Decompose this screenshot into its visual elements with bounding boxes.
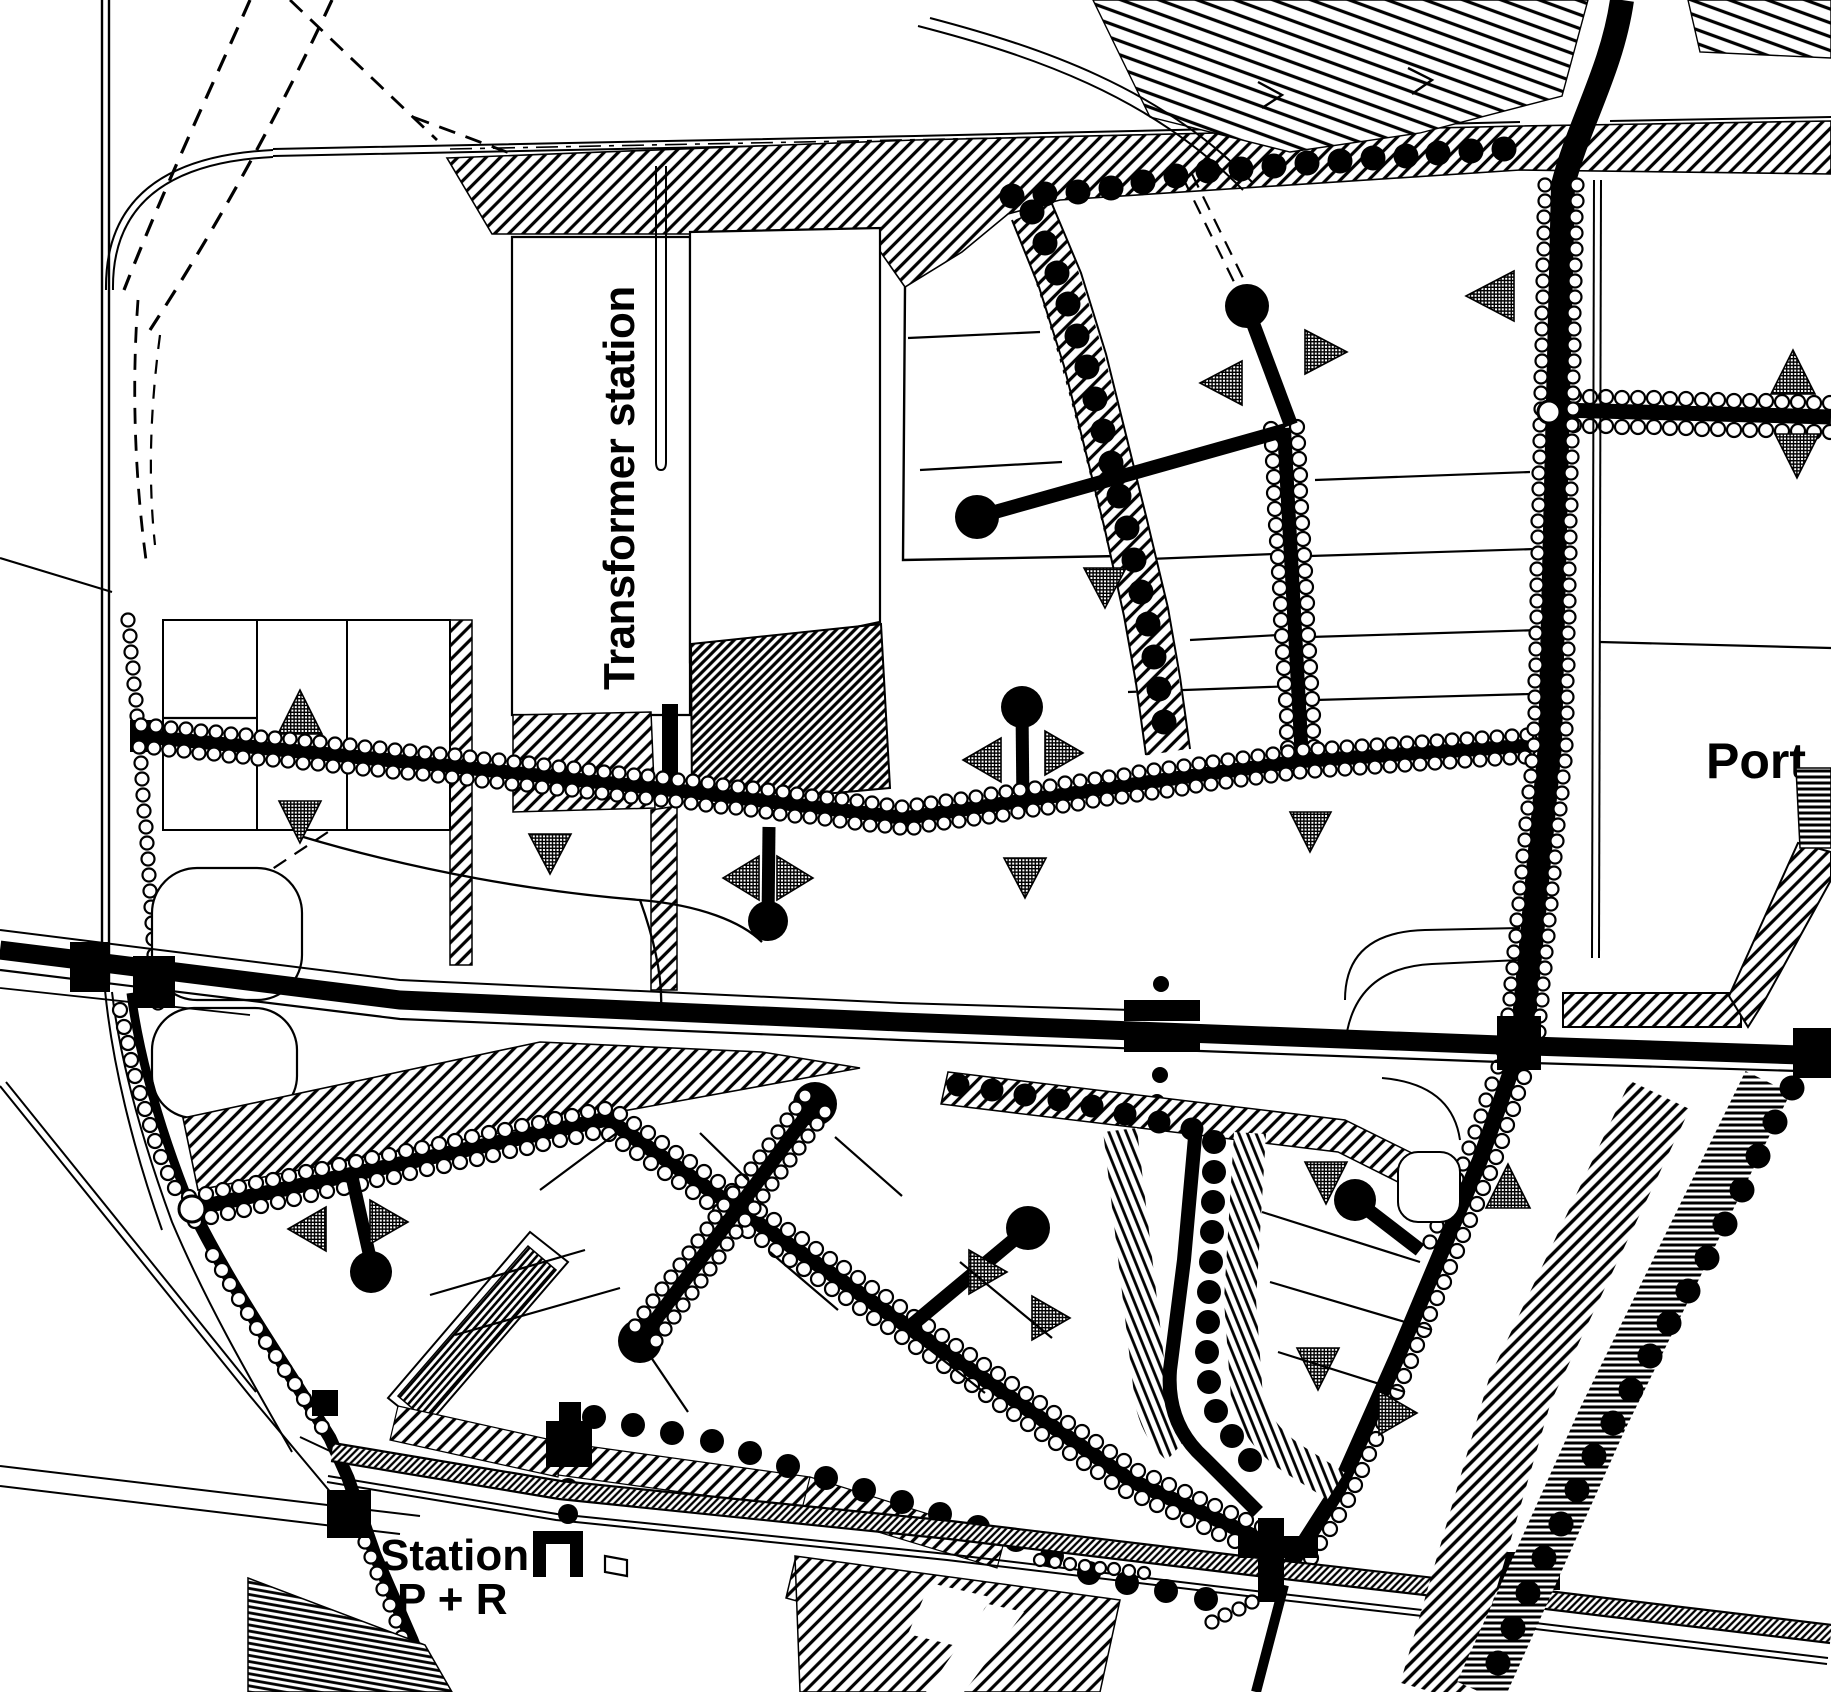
svg-text:Station: Station (380, 1531, 529, 1580)
svg-text:Port: Port (1706, 733, 1806, 789)
svg-text:Transformer station: Transformer station (595, 286, 644, 690)
svg-text:P + R: P + R (397, 1575, 507, 1624)
